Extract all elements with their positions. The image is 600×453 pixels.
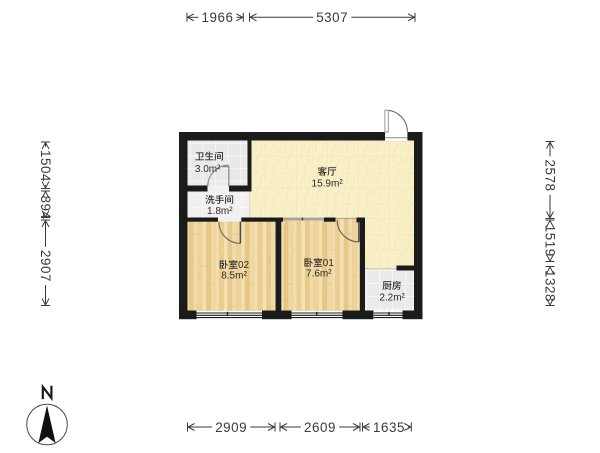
- svg-text:1519: 1519: [543, 225, 558, 257]
- svg-text:2909: 2909: [215, 420, 247, 435]
- svg-text:7.6m²: 7.6m²: [306, 269, 332, 280]
- svg-text:2578: 2578: [543, 160, 558, 192]
- svg-text:01: 01: [323, 258, 335, 269]
- svg-text:15.9m²: 15.9m²: [312, 179, 344, 190]
- svg-text:1.8m²: 1.8m²: [207, 206, 233, 217]
- svg-text:3.0m²: 3.0m²: [195, 164, 221, 175]
- svg-text:2.2m²: 2.2m²: [379, 293, 405, 304]
- svg-text:894: 894: [38, 196, 53, 220]
- svg-text:5307: 5307: [316, 10, 348, 25]
- svg-text:02: 02: [238, 260, 250, 271]
- svg-text:8.5m²: 8.5m²: [221, 271, 247, 282]
- svg-text:2609: 2609: [304, 420, 336, 435]
- svg-text:1635: 1635: [373, 420, 405, 435]
- svg-text:1504: 1504: [38, 150, 53, 182]
- svg-text:2907: 2907: [38, 250, 53, 282]
- svg-text:1966: 1966: [202, 10, 234, 25]
- svg-text:1328: 1328: [543, 270, 558, 302]
